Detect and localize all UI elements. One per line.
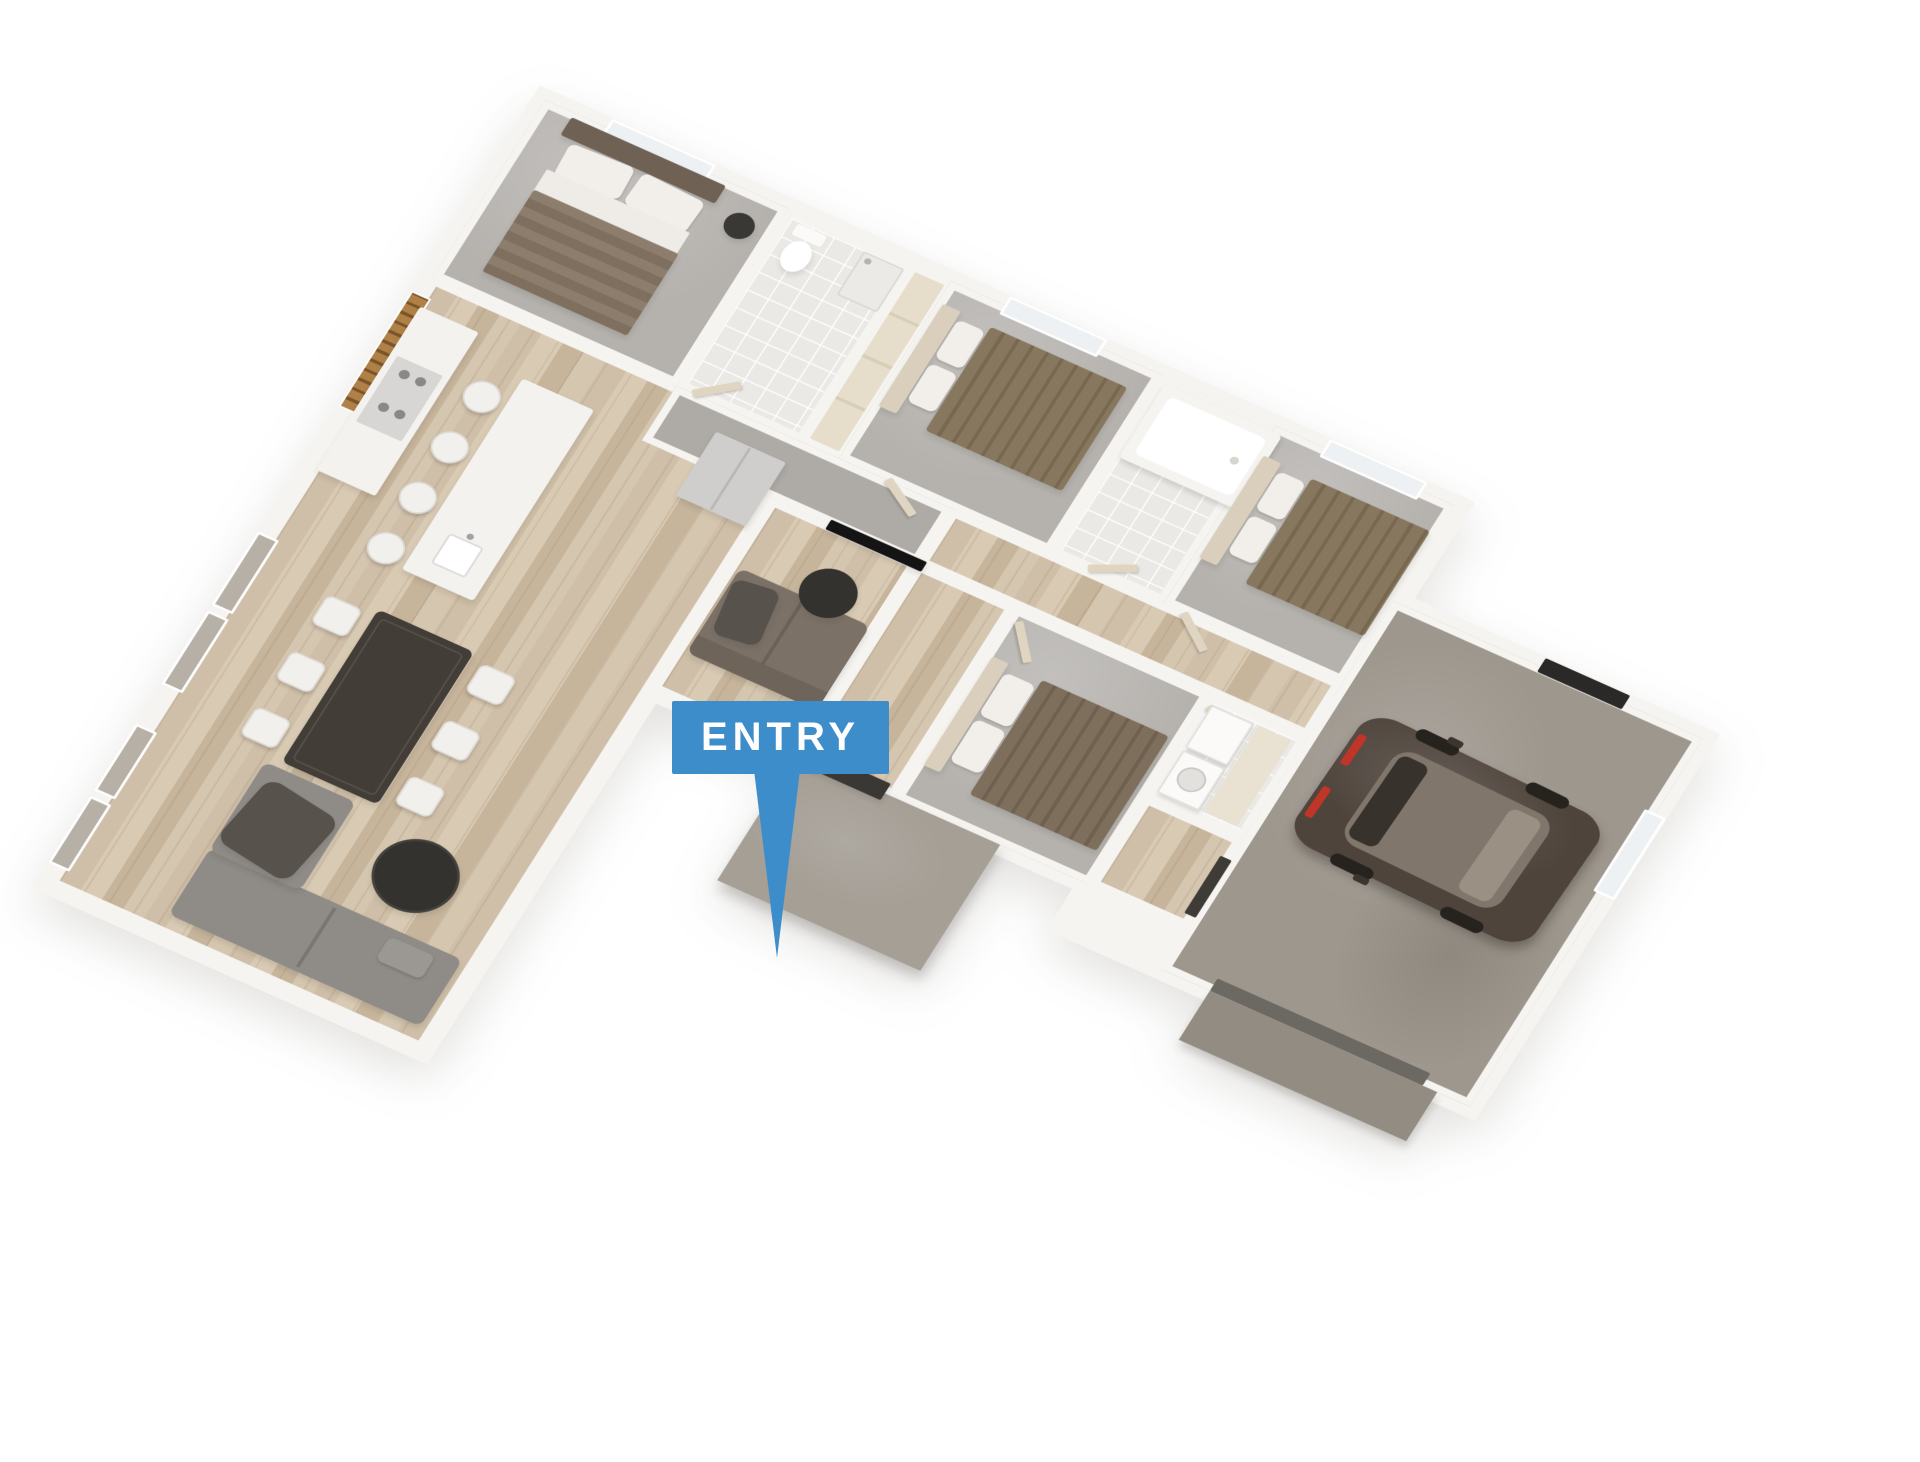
floor-plan-stage: ENTRY bbox=[0, 0, 1920, 1326]
bathroom2-door bbox=[1088, 565, 1138, 573]
floor-plan-3d bbox=[40, 100, 1813, 1462]
entry-label: ENTRY bbox=[701, 715, 860, 760]
entry-label-box: ENTRY bbox=[672, 701, 889, 774]
